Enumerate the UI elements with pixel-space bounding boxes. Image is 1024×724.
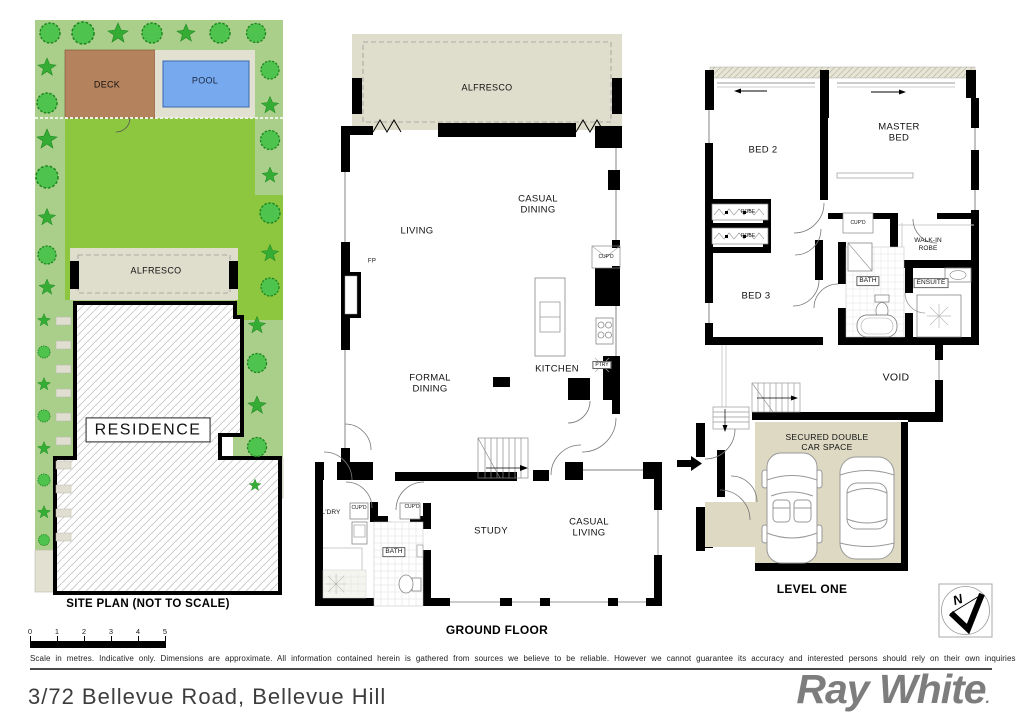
car-convertible [762, 453, 822, 563]
brand-dot: . [986, 690, 990, 707]
kitchen-label: KITCHEN [535, 363, 579, 374]
void-label: VOID [883, 372, 910, 385]
bed3-label: BED 3 [742, 290, 771, 301]
bath-tiles [374, 522, 423, 606]
entry-porch-tiles [323, 570, 366, 598]
ensuite-label: ENSUITE [914, 278, 949, 288]
study-label: STUDY [474, 525, 508, 536]
l1-cupboard-label: CUP'D [850, 220, 865, 226]
living-label: LIVING [401, 225, 434, 236]
scale-tick-label: 1 [55, 627, 59, 636]
site-plan-title: SITE PLAN (NOT TO SCALE) [66, 598, 230, 612]
north-compass-icon [938, 583, 994, 641]
car-space-label: SECURED DOUBLE CAR SPACE [777, 432, 877, 452]
gf-cupboard-label: CUP'D [598, 254, 613, 260]
ray-white-logo: Ray White. [796, 666, 990, 713]
entry-arrow-icon [677, 456, 702, 471]
disclaimer-text: Scale in metres. Indicative only. Dimens… [30, 654, 992, 663]
casual-dining-label: CASUAL DINING [509, 194, 567, 217]
kitchen-island [535, 278, 565, 356]
level-one-title: LEVEL ONE [777, 582, 848, 596]
entry-porch-slab [705, 502, 757, 547]
brand-name: Ray White [796, 666, 985, 712]
master-bench [837, 173, 913, 178]
floorplan-page: DECK POOL ALFRESCO RESIDENCE SITE PLAN (… [0, 0, 1024, 724]
fireplace-label: FP [368, 258, 376, 265]
gf-cupboard3-label: CUP'D [404, 504, 419, 510]
robe2-label: ROBE [741, 233, 755, 239]
level-one-drawing [655, 55, 1005, 615]
robe1-label: ROBE [741, 209, 755, 215]
scale-tick-label: 0 [28, 627, 32, 636]
ground-floor-drawing [300, 20, 670, 635]
l1-bath-label: BATH [856, 276, 879, 286]
bed2-label: BED 2 [749, 144, 778, 155]
ground-floor-title: GROUND FLOOR [446, 623, 548, 637]
formal-dining-label: FORMAL DINING [401, 373, 459, 396]
scale-tick-label: 5 [163, 627, 167, 636]
scale-bar-rule [30, 641, 166, 648]
casual-living-label: CASUAL LIVING [561, 517, 617, 540]
car-sedan [840, 457, 894, 559]
scale-tick-label: 4 [136, 627, 140, 636]
scale-tick-label: 2 [82, 627, 86, 636]
laundry-label: L'DRY [322, 509, 341, 517]
site-plan-drawing [30, 15, 290, 615]
site-alfresco-label: ALFRESCO [131, 266, 182, 277]
scale-tick-label: 3 [109, 627, 113, 636]
walk-in-robe-label: WALK-IN ROBE [904, 237, 952, 253]
l1-bath [846, 243, 904, 337]
gf-cupboard2-label: CUP'D [351, 505, 366, 511]
property-address: 3/72 Bellevue Road, Bellevue Hill [28, 684, 386, 710]
l1-sliding-windows [717, 83, 955, 95]
master-bed-label: MASTER BED [869, 122, 929, 145]
pool-label: POOL [192, 76, 218, 87]
gf-alfresco-label: ALFRESCO [462, 83, 513, 94]
gf-bath-label: BATH [382, 547, 405, 557]
cooktop [596, 318, 613, 344]
residence-label: RESIDENCE [86, 417, 211, 442]
terrace-strip-hatch [710, 67, 975, 78]
deck-label: DECK [94, 80, 120, 91]
pantry-label: PTRY [592, 361, 611, 369]
